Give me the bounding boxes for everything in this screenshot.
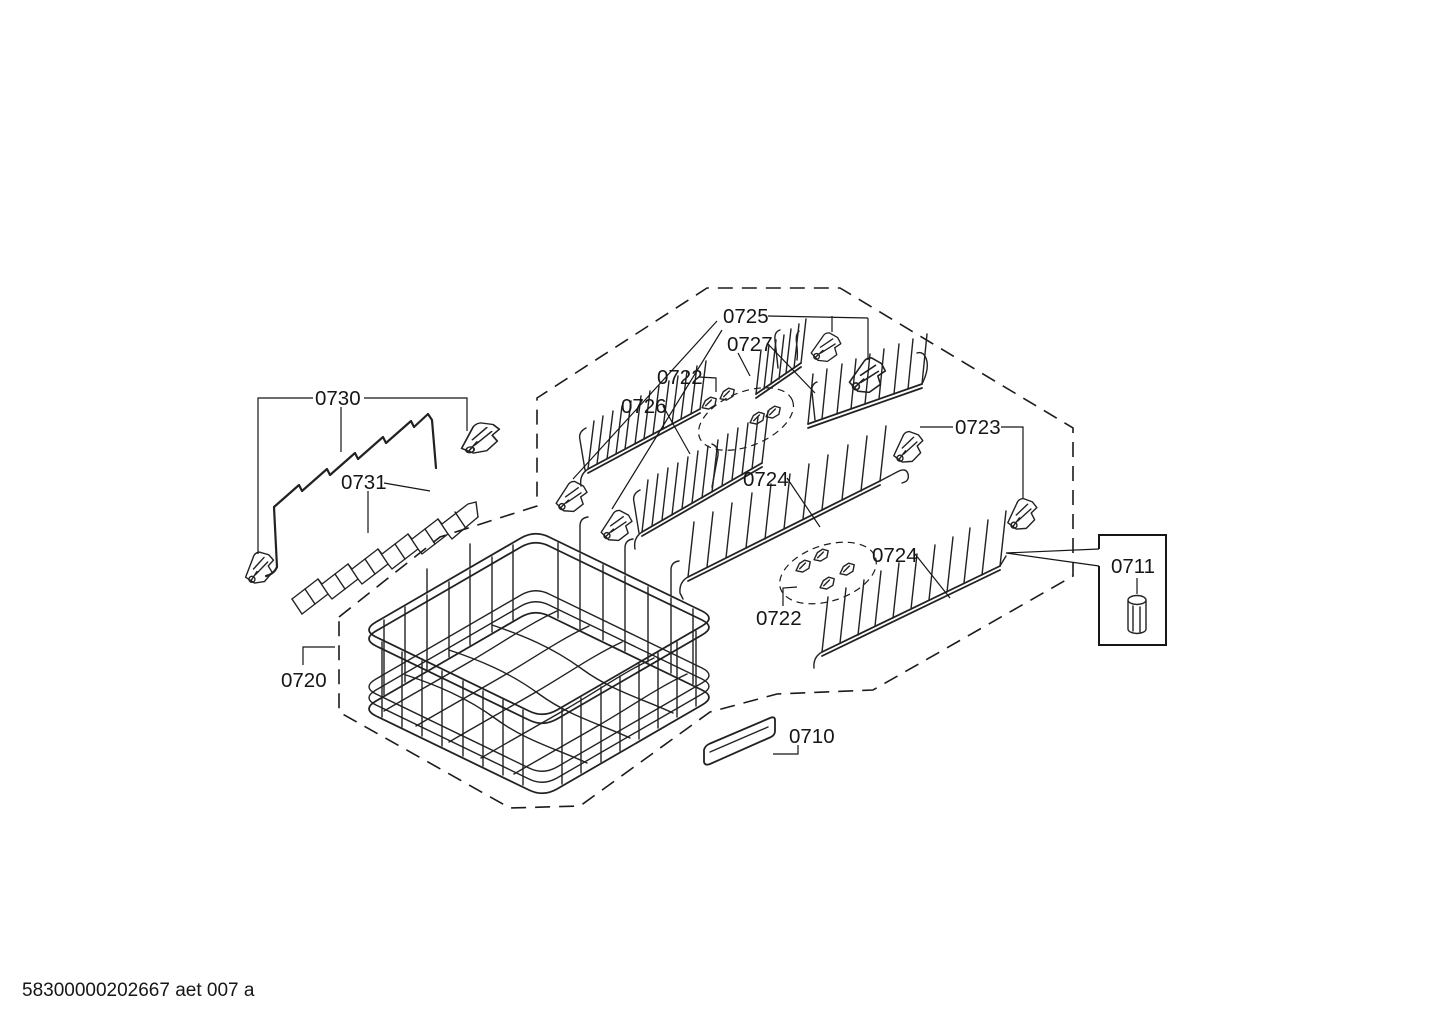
lower-basket-drawing (369, 517, 709, 793)
cup-wire-0730 (266, 414, 436, 576)
part-label-0722-upper: 0722 (657, 366, 703, 389)
part-label-0724-upper: 0724 (743, 468, 789, 491)
hinge-bracket-left-2 (601, 509, 633, 541)
box-0711 (1006, 535, 1166, 645)
tine-row-0724-b (814, 511, 1006, 668)
part-label-0720: 0720 (281, 669, 327, 692)
part-label-0723: 0723 (955, 416, 1001, 439)
wire-end-bracket-right (458, 420, 503, 455)
fold-unit-0725-a (811, 331, 842, 362)
part-label-0731: 0731 (341, 471, 387, 494)
bracket-0723-a (892, 431, 924, 463)
part-label-0725: 0725 (723, 305, 769, 328)
part-label-0722-lower: 0722 (756, 607, 802, 630)
part-label-0724-lower: 0724 (872, 544, 918, 567)
part-label-0727: 0727 (727, 333, 773, 356)
parts-diagram-page: 0725 0727 0722 0726 0724 0724 0722 0723 … (0, 0, 1442, 1019)
part-labels: 0725 0727 0722 0726 0724 0724 0722 0723 … (281, 305, 1155, 748)
basket-floor-wires (384, 611, 687, 774)
hinge-bracket-left-1 (556, 480, 588, 512)
strip-0710 (704, 717, 775, 764)
pin-0711 (1128, 596, 1146, 634)
diagram-canvas: 0725 0727 0722 0726 0724 0724 0722 0723 … (0, 0, 1442, 1019)
tine-row-0727-a (756, 319, 806, 398)
clip-set-0722-upper (690, 375, 803, 463)
wire-end-bracket-left (242, 550, 276, 584)
part-label-0710: 0710 (789, 725, 835, 748)
part-label-0711: 0711 (1111, 555, 1155, 578)
document-number: 58300000202667 aet 007 a (22, 980, 255, 1001)
stepped-strip-0731 (292, 502, 478, 614)
part-label-0726: 0726 (621, 395, 667, 418)
bracket-0723-b (1006, 498, 1038, 530)
part-label-0730: 0730 (315, 387, 361, 410)
